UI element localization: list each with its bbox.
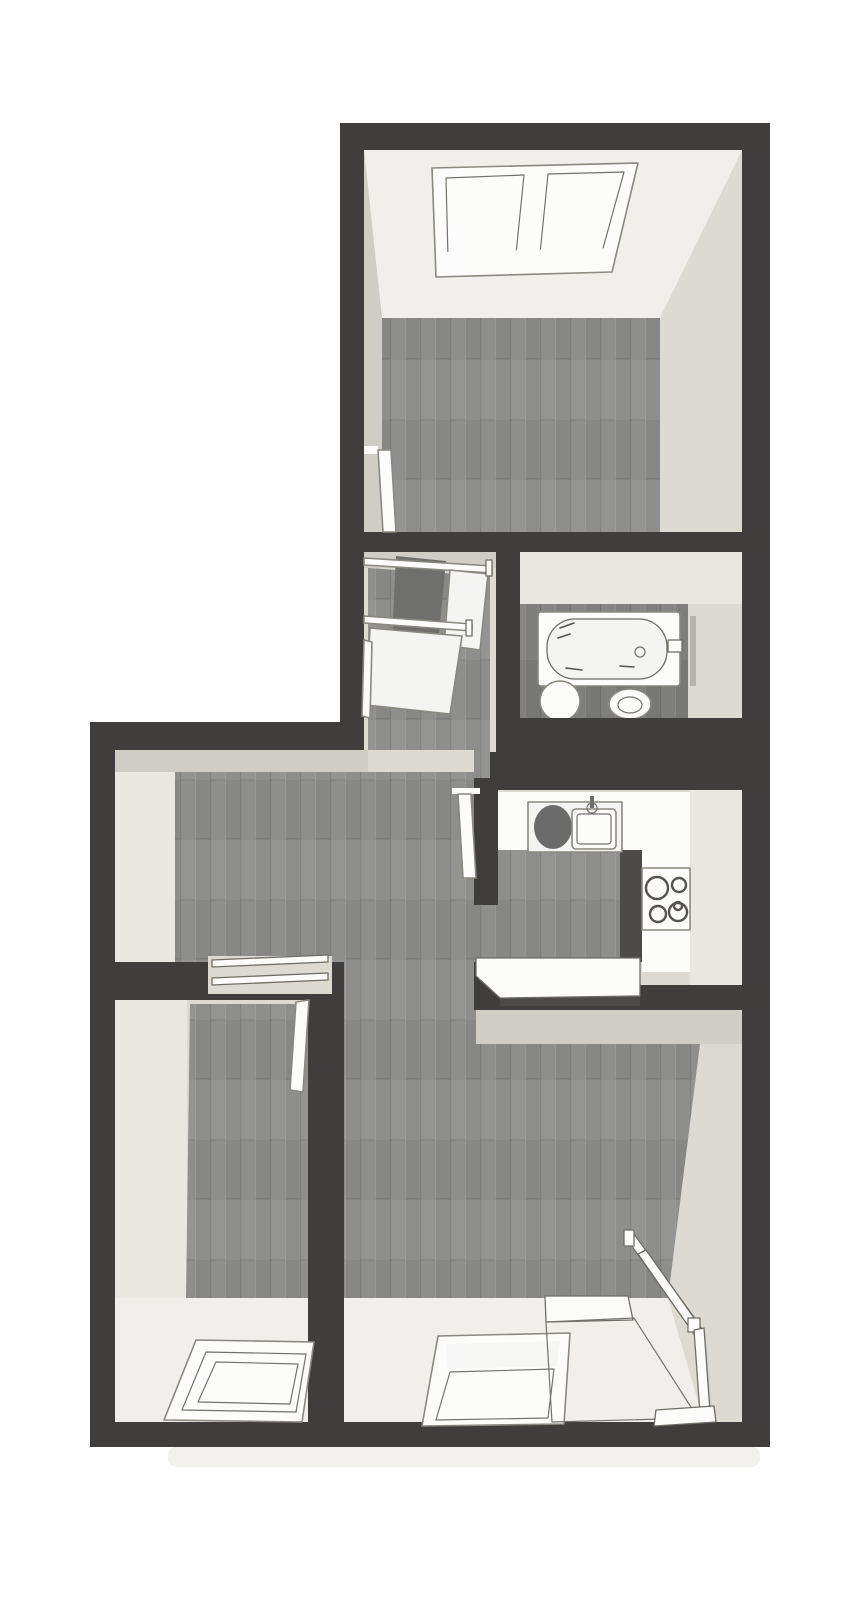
bathtub: [538, 612, 696, 686]
kitchen-doorway-floor: [474, 905, 498, 962]
bathroom-south-wall: [496, 718, 742, 792]
left-room-wood-floor: [186, 1004, 308, 1298]
room-kitchen: [476, 790, 742, 1006]
kitchen-wood-floor: [498, 848, 620, 962]
room-living: [344, 1010, 742, 1426]
loggia-window-band: [446, 1341, 560, 1369]
peninsula-top: [476, 958, 640, 998]
living-top-face: [476, 1010, 742, 1044]
kitchen-right-face: [690, 790, 742, 985]
counter-side-shadow: [620, 850, 642, 962]
floor-plan-drawing: [0, 0, 867, 1600]
balcony-rail-bottom: [654, 1406, 716, 1426]
railing-panel-front: [366, 628, 462, 714]
kitchen-door-frame: [452, 788, 480, 794]
hallway-west-face: [115, 750, 175, 962]
balcony-post-top: [624, 1230, 634, 1246]
sink-faucet-stem: [590, 796, 594, 808]
kitchen-sink-unit: [528, 796, 622, 852]
bathtub-faucet: [668, 640, 682, 652]
skylight-sill: [444, 248, 616, 272]
bathtub-basin: [547, 619, 667, 679]
railing-post-mid: [466, 620, 472, 636]
cooktop: [642, 868, 690, 930]
room-stairwell: [362, 552, 496, 778]
sink-drainer: [534, 805, 572, 849]
bathroom-top-face: [520, 552, 742, 604]
room-bedroom: [364, 150, 742, 532]
left-room-west-face: [115, 1000, 187, 1300]
left-room-doorway: [208, 955, 332, 994]
washbasin-bowl: [609, 689, 651, 719]
washbasin: [609, 689, 651, 719]
peninsula-counter: [476, 958, 640, 1006]
toilet: [540, 681, 580, 721]
hallway-top-face: [115, 750, 368, 772]
bedroom-skylight-window: [432, 163, 638, 277]
room-bathroom: [496, 552, 742, 792]
sink-basin: [572, 809, 616, 849]
bedroom-wood-floor: [382, 318, 660, 532]
floor-plan-page: [0, 0, 867, 1600]
railing-post-right: [486, 560, 492, 576]
bedroom-door-frame: [364, 446, 378, 454]
ground-shadow: [168, 1447, 760, 1467]
railing-left-rail: [362, 640, 372, 718]
bathtub-shadow: [690, 616, 696, 686]
room-lower-left: [115, 1000, 314, 1422]
